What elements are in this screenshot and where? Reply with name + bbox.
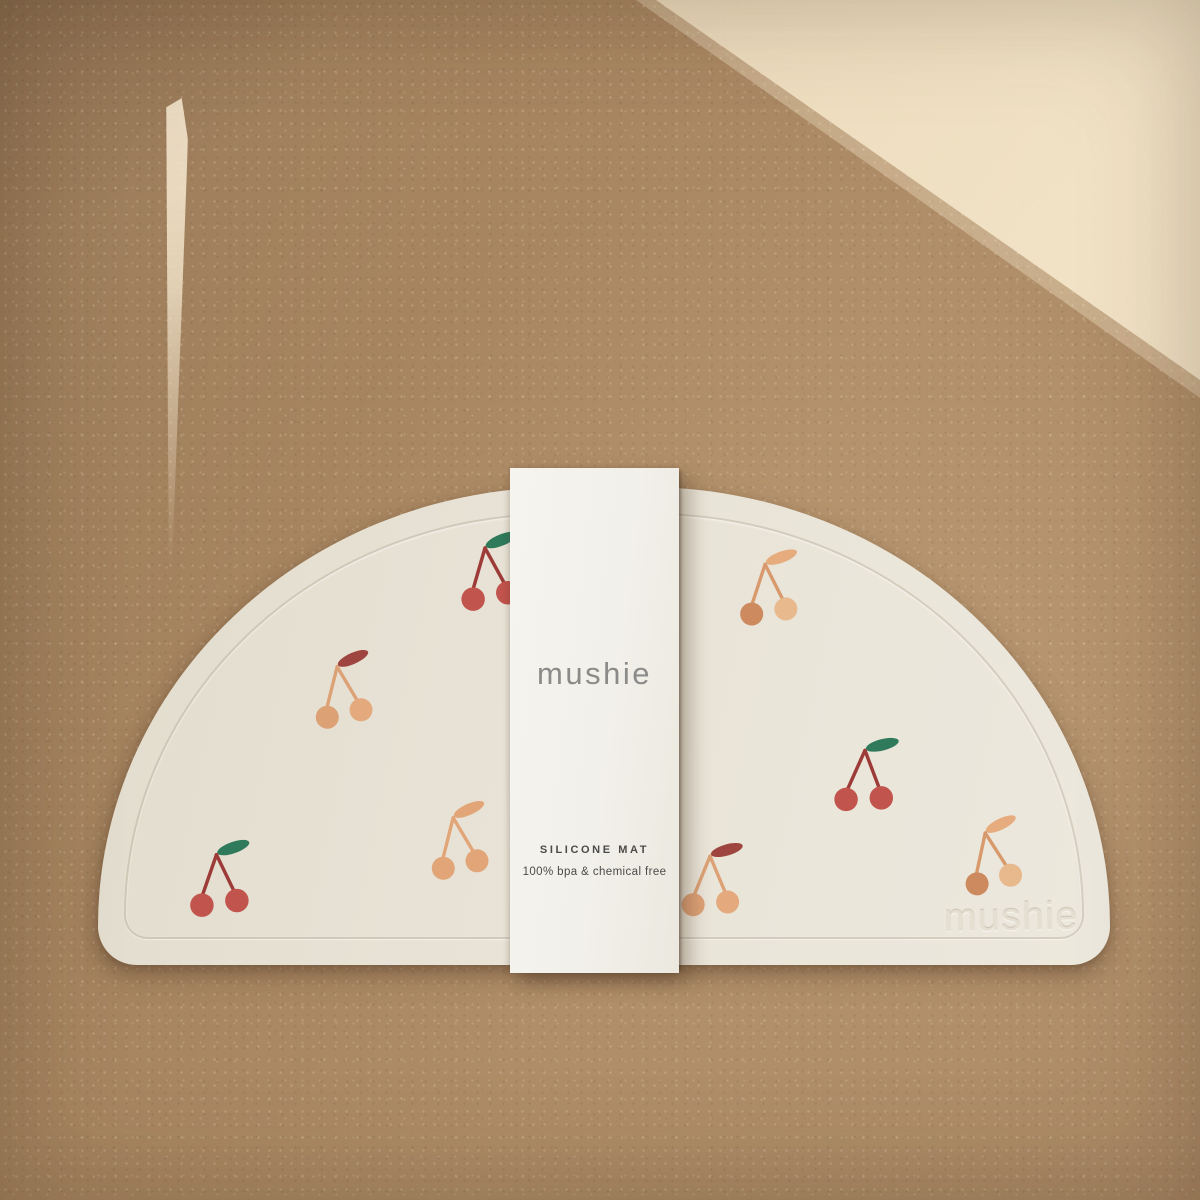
cherry-motif — [404, 789, 515, 900]
cherry-stem — [485, 546, 504, 585]
cherry-berry — [681, 893, 705, 917]
cherry-motif — [168, 830, 274, 936]
cherry-leaf — [336, 647, 371, 671]
cherry-motif — [818, 730, 916, 828]
embossed-brand-logo: mushie — [944, 895, 1079, 941]
packaging-band: mushie SILICONE MAT 100% bpa & chemical … — [510, 468, 679, 973]
cherry-leaf — [764, 546, 799, 568]
cherry-stem — [748, 564, 769, 604]
cherry-berry — [314, 704, 341, 731]
cherry-leaf — [215, 837, 251, 859]
cherry-berry — [870, 786, 893, 809]
cherry-stem — [337, 664, 357, 703]
cherry-berry — [963, 870, 990, 897]
cherry-stem — [865, 750, 879, 788]
product-tagline-label: 100% bpa & chemical free — [510, 866, 679, 878]
cherry-berry — [739, 601, 764, 626]
cherry-stem — [693, 856, 711, 895]
brand-logo: mushie — [510, 656, 679, 692]
cherry-stem — [199, 855, 220, 895]
product-photo-scene: mushie mushie SILICONE MAT 100% bpa & ch… — [0, 0, 1200, 1200]
cherry-stem — [710, 856, 725, 893]
cherry-stem — [848, 750, 865, 789]
cherry-stem — [453, 815, 473, 854]
cherry-berry — [430, 855, 457, 882]
cherry-berry — [716, 890, 740, 914]
product-name-label: SILICONE MAT — [510, 844, 679, 856]
cherry-stem — [216, 853, 234, 892]
cherry-berry — [773, 596, 798, 621]
cherry-berry — [224, 888, 249, 913]
cherry-berry — [189, 892, 214, 917]
cherry-berry — [348, 696, 375, 723]
cherry-motif — [717, 539, 823, 645]
cherry-berry — [997, 862, 1024, 889]
cherry-stem — [765, 563, 783, 601]
cherry-berry — [834, 788, 857, 811]
cherry-berry — [464, 847, 491, 874]
cherry-leaf — [452, 798, 487, 822]
cherry-berry — [460, 586, 487, 613]
cherry-stem — [985, 830, 1006, 869]
cherry-leaf — [983, 812, 1018, 837]
cherry-leaf — [865, 735, 900, 754]
cherry-motif — [288, 638, 399, 749]
cherry-leaf — [709, 840, 744, 860]
